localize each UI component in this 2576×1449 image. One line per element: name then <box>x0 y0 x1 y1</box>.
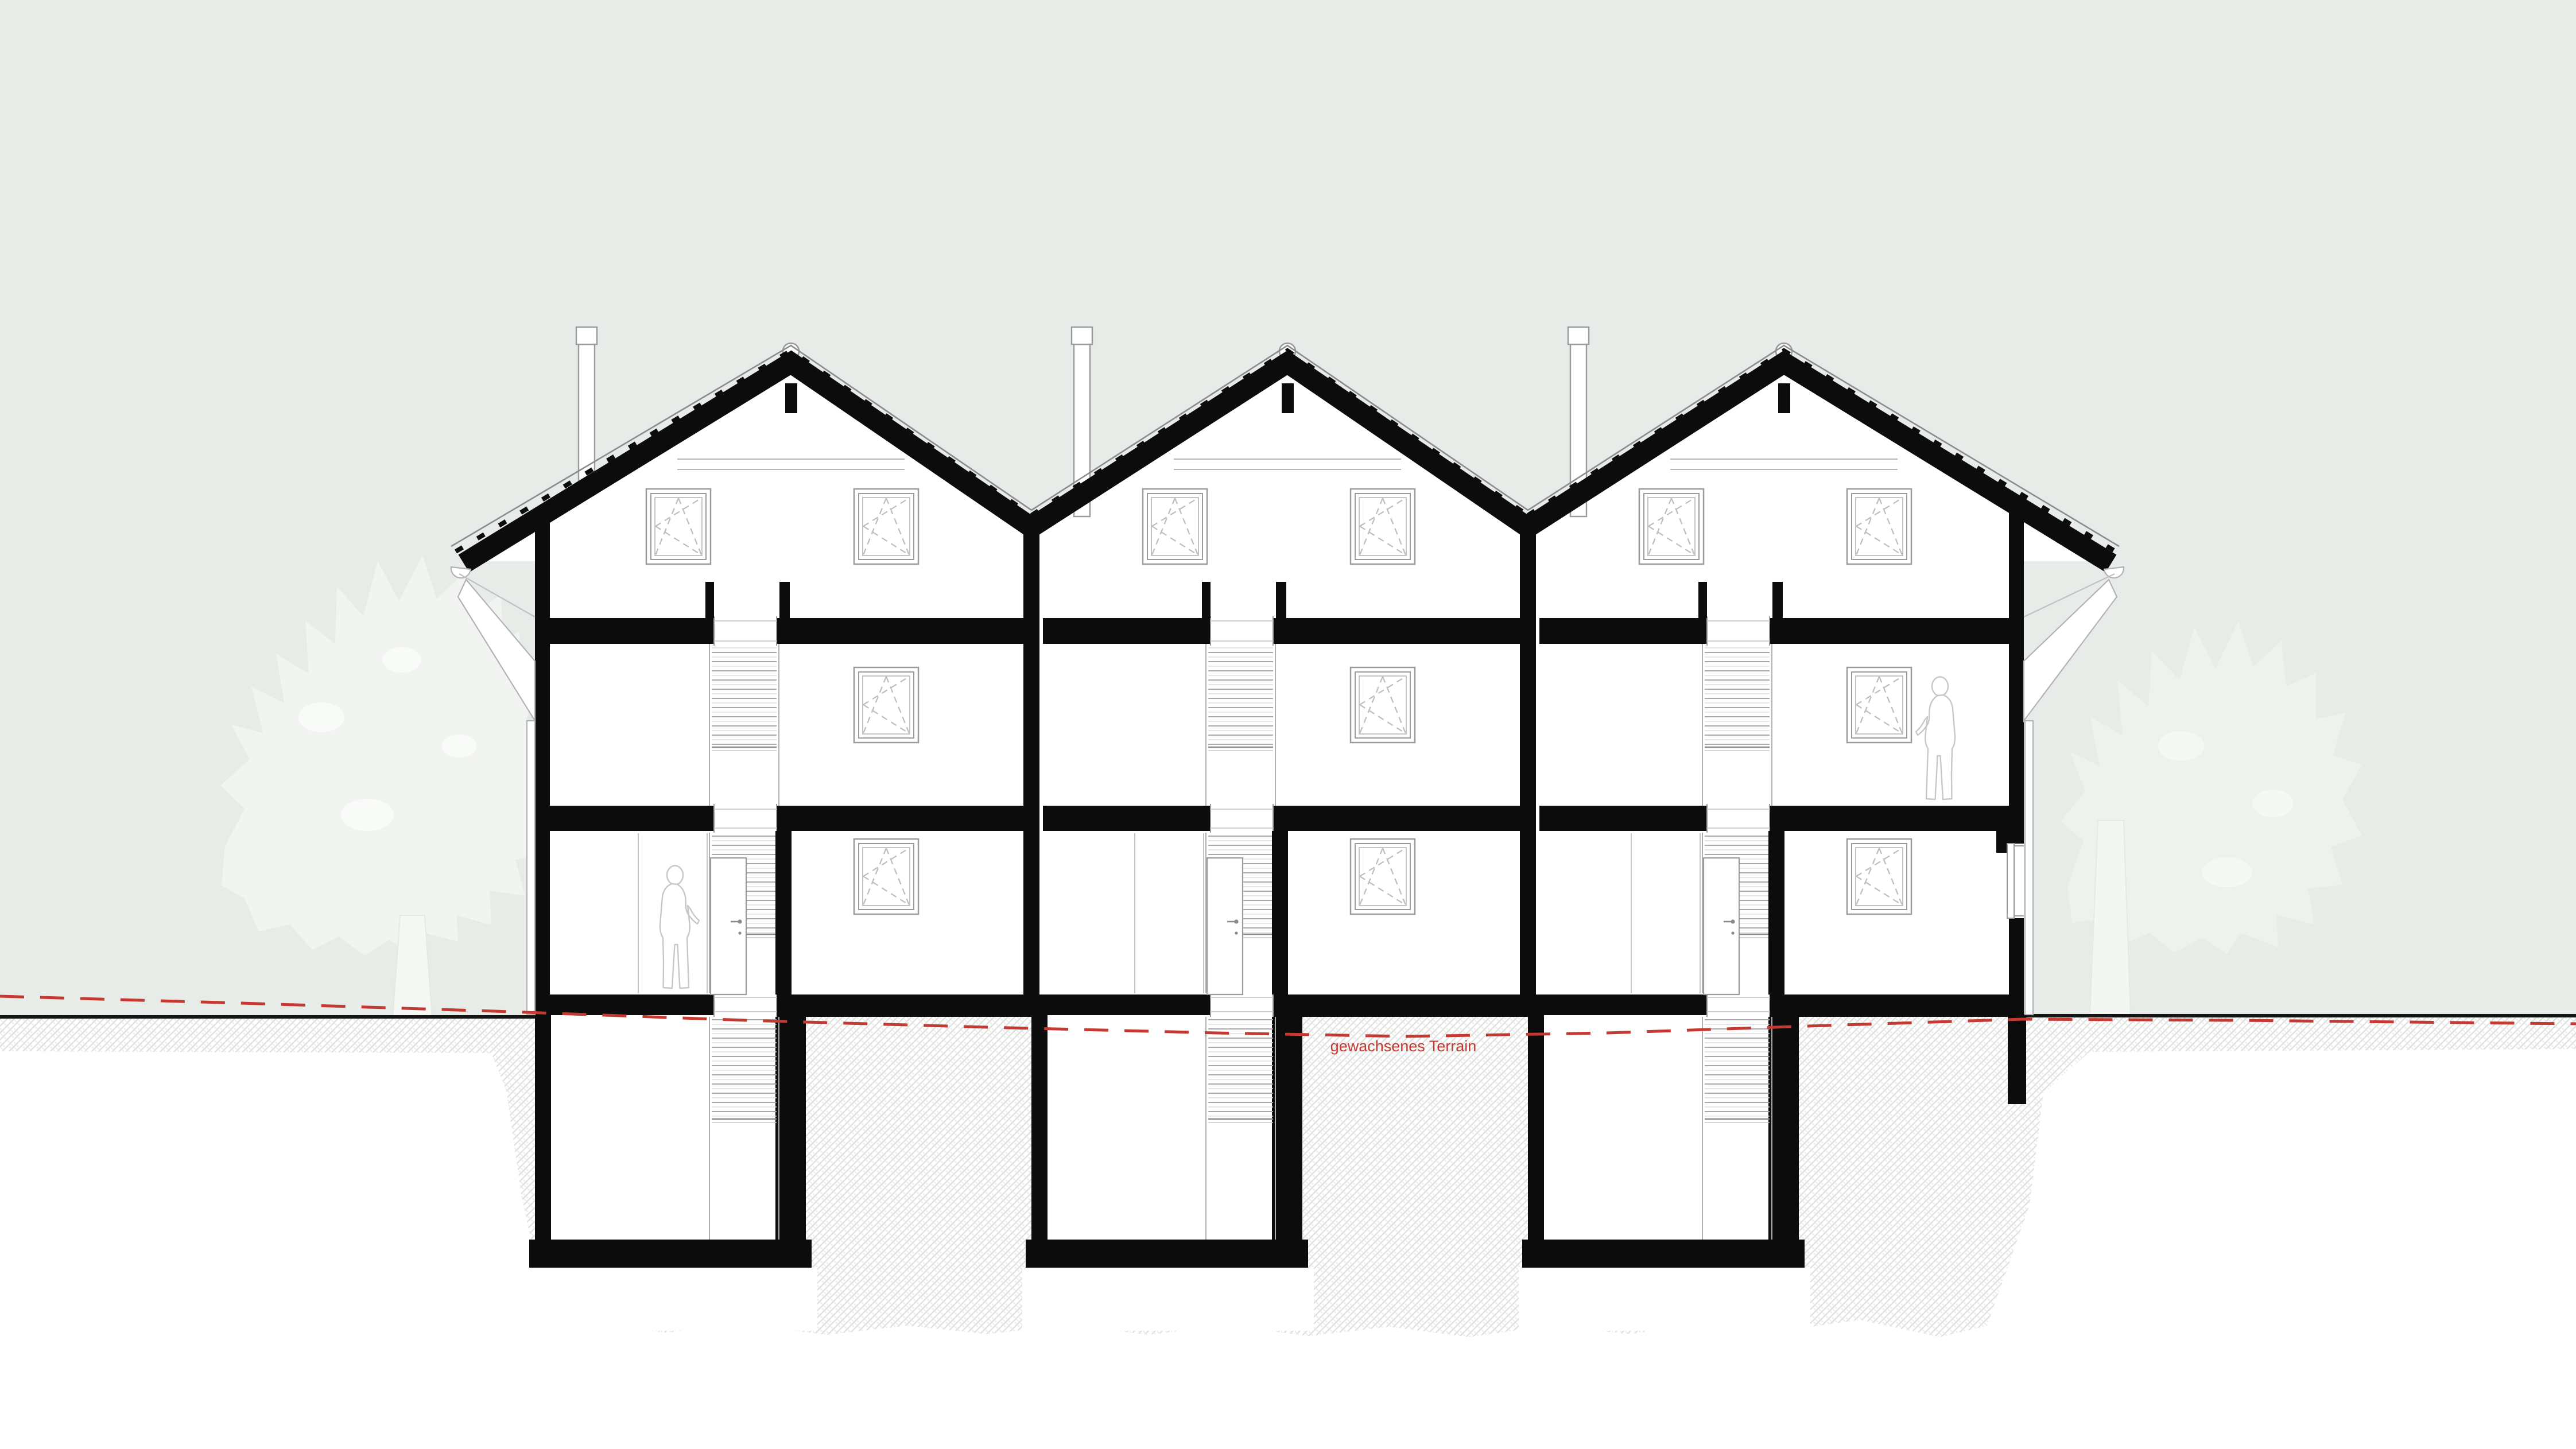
section-drawing: gewachsenes Terrain <box>0 0 2576 1449</box>
terrain-label: gewachsenes Terrain <box>1330 1038 1477 1055</box>
party-wall-2 <box>1520 515 1536 997</box>
foundation-stub-right <box>2008 1015 2026 1104</box>
downpipe-left <box>527 721 535 1015</box>
exterior-wall-right-lower <box>2009 918 2024 997</box>
tree-trunk <box>393 915 432 1018</box>
downpipe-right <box>2025 721 2033 1015</box>
exterior-wall-right-upper <box>2009 508 2024 844</box>
exterior-wall-left <box>535 508 550 997</box>
party-wall-1 <box>1023 515 1039 997</box>
